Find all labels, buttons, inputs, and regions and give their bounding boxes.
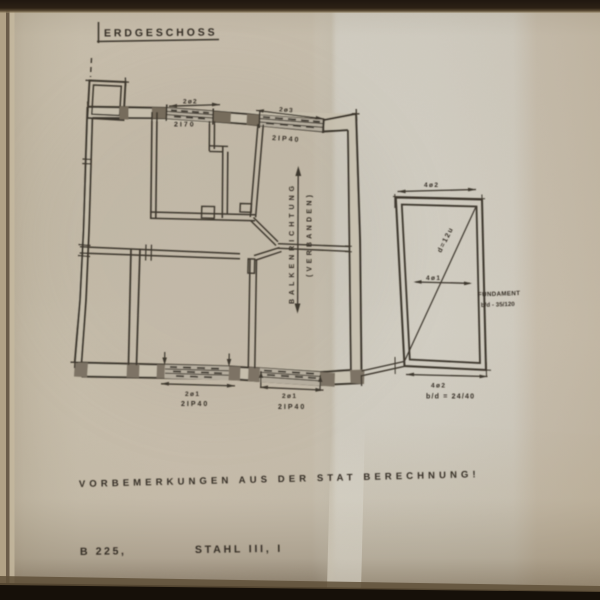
svg-text:2I70: 2I70 xyxy=(174,122,196,129)
svg-text:(VERBANDEN): (VERBANDEN) xyxy=(307,192,314,277)
svg-text:ERDGESCHOSS: ERDGESCHOSS xyxy=(104,27,218,40)
svg-text:2ø2: 2ø2 xyxy=(183,99,198,106)
svg-text:b/d = 24/40: b/d = 24/40 xyxy=(426,394,475,401)
svg-text:b/d - 35/120: b/d - 35/120 xyxy=(481,302,516,309)
svg-text:2ø1: 2ø1 xyxy=(185,391,200,398)
svg-text:2IP40: 2IP40 xyxy=(278,404,306,411)
svg-text:4ø2: 4ø2 xyxy=(424,182,439,189)
svg-text:4ø1: 4ø1 xyxy=(426,275,441,282)
svg-text:STAHL III, I: STAHL III, I xyxy=(195,543,283,556)
svg-text:B 225,: B 225, xyxy=(80,545,127,558)
svg-text:4ø2: 4ø2 xyxy=(431,383,446,390)
svg-text:2IP40: 2IP40 xyxy=(181,401,209,408)
svg-text:2ø1: 2ø1 xyxy=(282,393,297,400)
svg-text:2ø3: 2ø3 xyxy=(279,107,294,115)
svg-text:BALKENRICHTUNG: BALKENRICHTUNG xyxy=(289,182,296,304)
svg-text:FUNDAMENT: FUNDAMENT xyxy=(478,290,521,298)
